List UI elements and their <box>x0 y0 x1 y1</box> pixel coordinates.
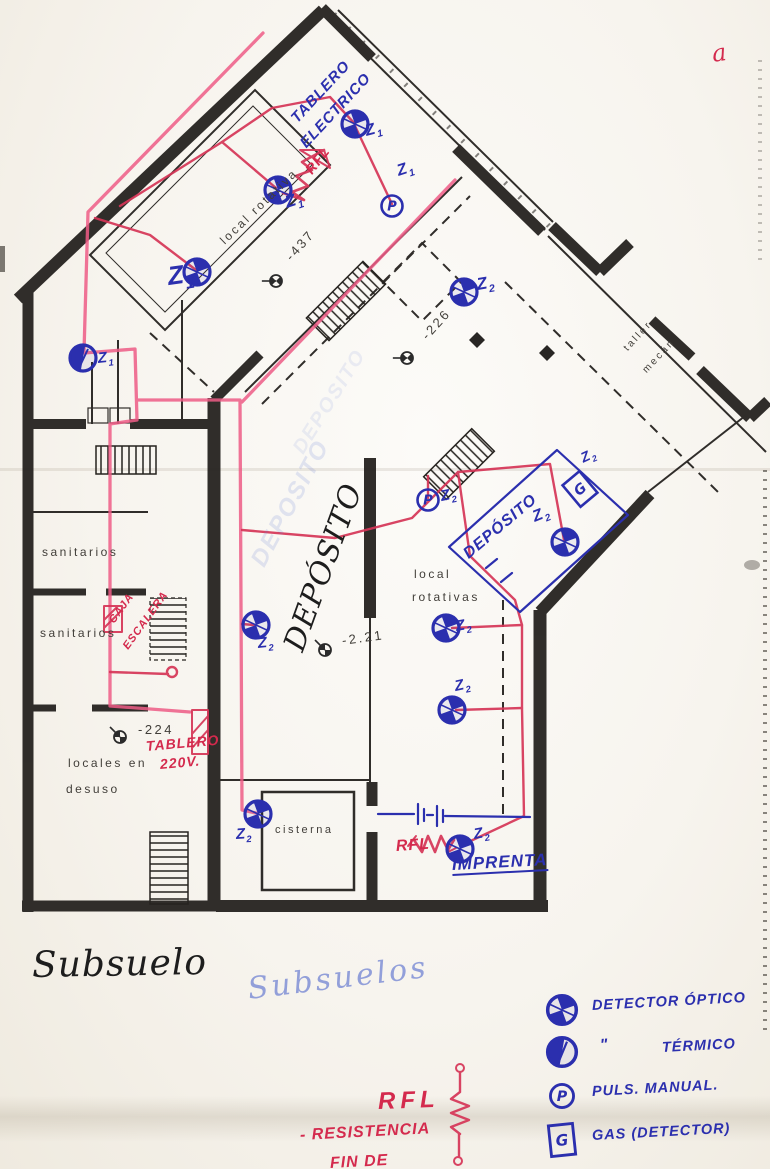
optical-detector-icon <box>439 697 465 723</box>
rfl-note-abbr: RFL <box>378 1088 440 1114</box>
note-tablero-220v-2: 220V. <box>159 754 200 771</box>
pulsador-detector-icon: P <box>550 1084 573 1107</box>
pulsador-detector-icon: P <box>382 196 403 217</box>
zone-label-z2: Z2 <box>472 824 491 845</box>
zone-label-z2: Z2 <box>454 616 473 637</box>
svg-text:P: P <box>423 494 433 509</box>
gas-detector-icon: G <box>548 1123 575 1156</box>
room-label-cisterna: cisterna <box>275 825 334 836</box>
zone-label-z2: Z2 <box>475 272 497 296</box>
legend-symbols-layer: PG <box>548 996 577 1157</box>
floor-title-black: Subsuelo <box>32 945 208 984</box>
svg-text:P: P <box>557 1089 568 1105</box>
optical-detector-icon <box>548 996 577 1025</box>
room-label-sanitarios-lower: sanitarios <box>40 627 116 639</box>
level-benchmark-icon <box>315 640 331 656</box>
optical-detector-icon <box>552 529 578 555</box>
zone-label-z2: Z2 <box>257 634 275 654</box>
zone-label-z1: Z1 <box>166 259 197 294</box>
level-benchmark-icon <box>262 270 285 293</box>
svg-text:P: P <box>387 200 397 215</box>
gas-detector-icon: G <box>563 471 598 507</box>
note-imprenta: IMPRENTA <box>451 851 547 876</box>
room-label-rotativas-2: rotativas <box>412 591 480 603</box>
room-label-rotativas-1: local <box>414 568 451 580</box>
floor-plan-scan: PPG PG local rotativasanitariossanitario… <box>0 0 770 1169</box>
optical-detector-icon <box>451 279 477 305</box>
room-label-sanitarios-upper: sanitarios <box>42 546 118 558</box>
svg-text:G: G <box>571 480 590 500</box>
level-benchmark-icon <box>393 347 416 370</box>
optical-detector-icon <box>245 801 271 827</box>
pulsador-detector-icon: P <box>418 490 439 511</box>
plan-drawing: PPG PG <box>0 0 770 1169</box>
note-rfl-imprenta: RFL <box>395 837 430 855</box>
legend-ditto-mark: " <box>599 1037 609 1054</box>
thermal-detector-icon <box>548 1038 577 1067</box>
rfl-note-line2: FIN DE <box>330 1153 389 1169</box>
zone-label-z1: Z1 <box>97 349 115 369</box>
room-label-locales-2: desuso <box>66 783 120 795</box>
thermal-detector-icon <box>70 345 96 371</box>
level-benchmark-icon <box>110 727 126 743</box>
room-label-locales-1: locales en <box>68 757 147 769</box>
corner-mark: a <box>710 40 729 66</box>
legend-label-thermal: TÉRMICO <box>662 1037 737 1055</box>
zone-label-z2: Z2 <box>235 825 253 844</box>
stairs-layer <box>96 261 494 904</box>
svg-text:G: G <box>555 1131 569 1150</box>
level-label: -224 <box>138 723 174 736</box>
